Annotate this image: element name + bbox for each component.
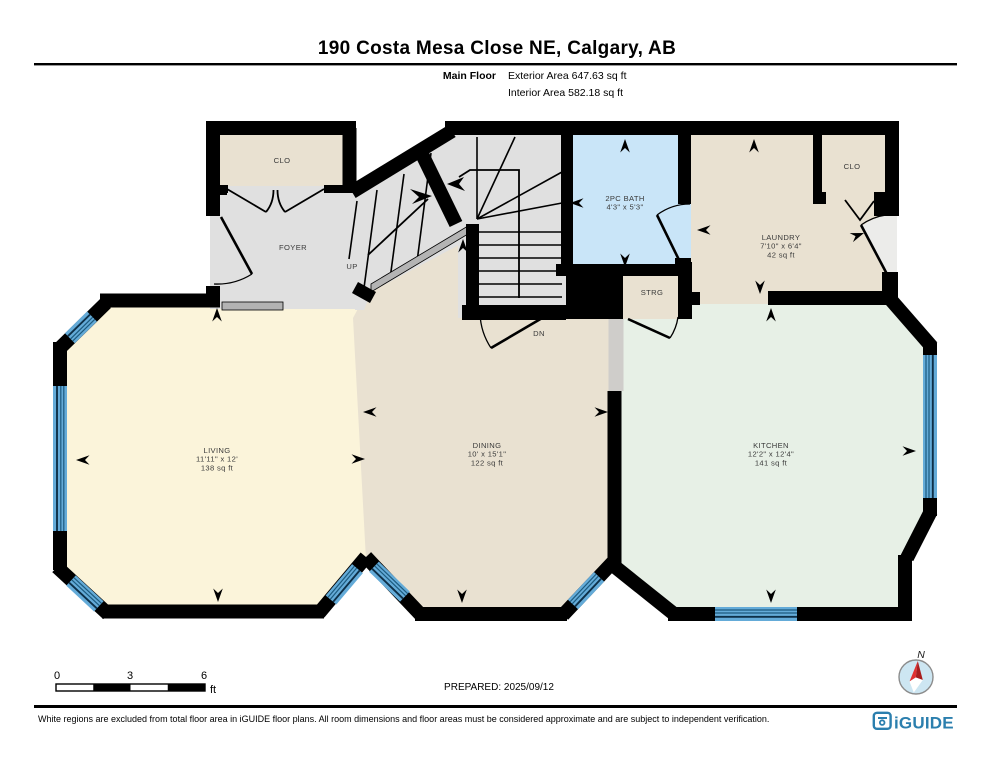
svg-text:DINING: DINING xyxy=(473,441,502,450)
svg-text:190 Costa Mesa Close NE, Calga: 190 Costa Mesa Close NE, Calgary, AB xyxy=(318,38,676,59)
svg-text:iGUIDE: iGUIDE xyxy=(894,714,954,733)
svg-text:UP: UP xyxy=(346,262,357,271)
svg-text:12'2" x 12'4": 12'2" x 12'4" xyxy=(748,450,794,459)
svg-text:138 sq ft: 138 sq ft xyxy=(201,463,234,472)
svg-text:7'10" x 6'4": 7'10" x 6'4" xyxy=(760,242,802,251)
svg-text:DN: DN xyxy=(533,329,545,338)
svg-text:LAUNDRY: LAUNDRY xyxy=(762,233,801,242)
svg-text:10' x 15'1": 10' x 15'1" xyxy=(468,450,507,459)
svg-text:CLO: CLO xyxy=(274,156,291,165)
svg-text:0: 0 xyxy=(54,670,60,682)
svg-text:3: 3 xyxy=(127,670,133,682)
svg-text:42 sq ft: 42 sq ft xyxy=(767,250,795,259)
svg-text:Main Floor: Main Floor xyxy=(443,70,496,82)
svg-text:141 sq ft: 141 sq ft xyxy=(755,458,788,467)
svg-text:6: 6 xyxy=(201,670,207,682)
svg-text:2PC BATH: 2PC BATH xyxy=(605,194,644,203)
svg-text:ft: ft xyxy=(210,684,216,696)
svg-text:STRG: STRG xyxy=(641,288,664,297)
svg-text:122 sq ft: 122 sq ft xyxy=(471,458,504,467)
svg-text:N: N xyxy=(917,649,925,661)
svg-text:11'11" x 12': 11'11" x 12' xyxy=(196,455,238,464)
svg-text:PREPARED: 2025/09/12: PREPARED: 2025/09/12 xyxy=(444,682,554,693)
svg-text:White regions are excluded fro: White regions are excluded from total fl… xyxy=(38,714,769,724)
svg-text:LIVING: LIVING xyxy=(204,446,231,455)
svg-text:CLO: CLO xyxy=(844,162,861,171)
svg-text:FOYER: FOYER xyxy=(279,243,307,252)
svg-text:Interior Area 582.18 sq ft: Interior Area 582.18 sq ft xyxy=(508,87,623,99)
svg-text:4'3" x 5'3": 4'3" x 5'3" xyxy=(606,203,643,212)
svg-text:Exterior Area 647.63 sq ft: Exterior Area 647.63 sq ft xyxy=(508,70,627,82)
svg-text:KITCHEN: KITCHEN xyxy=(753,441,789,450)
